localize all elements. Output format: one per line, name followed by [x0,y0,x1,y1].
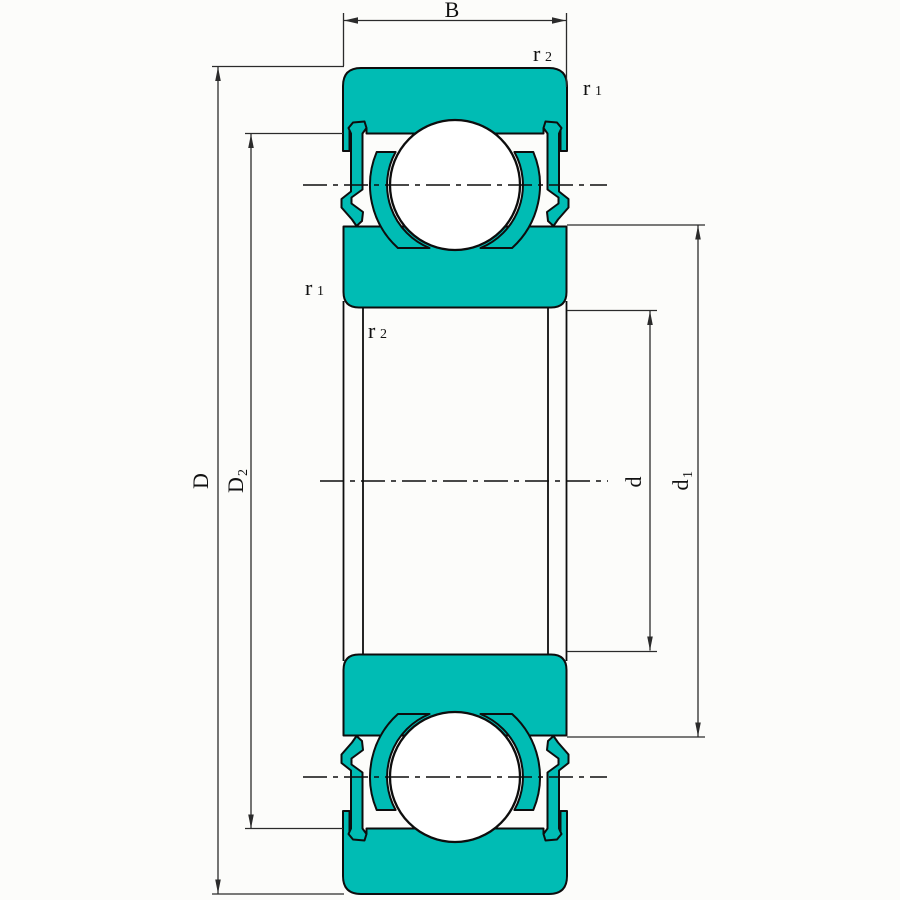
label-d1-base: d [668,480,693,491]
label-r1-top-base: r [583,75,591,100]
label-r1-left-subscript: 1 [317,284,324,299]
label-r2-left-group: r 2 [368,318,387,343]
bearing-technical-drawing: B D D 2 d [0,0,900,900]
label-d-bore: d [621,477,646,488]
d2-arrow-bottom [248,815,254,829]
label-r1-top-subscript: 1 [595,84,602,99]
label-r2-top-base: r [533,41,541,66]
b-arrow-right [552,17,566,23]
label-r2-top-subscript: 2 [545,50,552,65]
label-r1-top-group: r 1 [583,75,602,100]
label-r2-left-subscript: 2 [380,327,387,342]
d-cap-arrow-top [215,67,221,81]
label-r1-left-base: r [305,275,313,300]
label-d1-subscript: 1 [681,471,696,478]
bearing-bottom-section [342,655,569,895]
label-d2-base: D [223,477,248,493]
label-d1-group: d 1 [668,471,696,491]
label-d-cap: D [188,473,213,489]
label-r2-left-base: r [368,318,376,343]
label-d-cap-group: D [188,473,213,489]
label-d2-group: D 2 [223,469,251,493]
d-bore-arrow-top [647,311,653,325]
d1-arrow-bottom [695,723,701,737]
b-arrow-left [344,17,358,23]
label-d-bore-group: d [621,477,646,488]
d2-arrow-top [248,134,254,148]
d-bore-arrow-bottom [647,637,653,651]
d-cap-arrow-bottom [215,880,221,894]
label-b: B [445,0,460,22]
label-r1-left-group: r 1 [305,275,324,300]
dimension-outer-diameter-d: D [188,67,344,895]
label-d2-subscript: 2 [236,469,251,476]
d1-arrow-top [695,226,701,240]
bearing-top-section [342,68,569,308]
label-r2-top-group: r 2 [533,41,552,66]
